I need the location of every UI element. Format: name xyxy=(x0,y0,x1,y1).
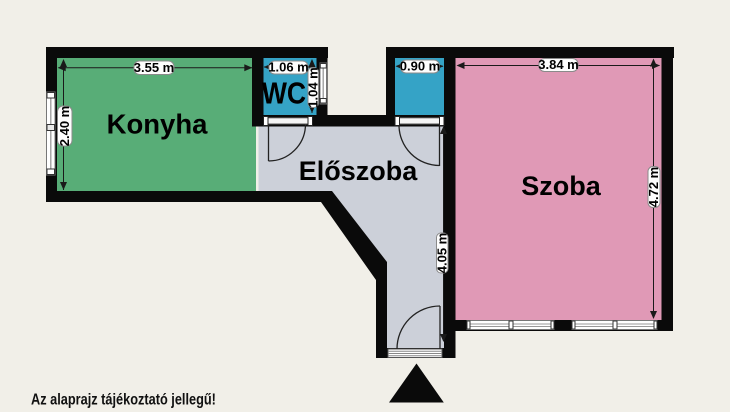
svg-text:1.06 m: 1.06 m xyxy=(268,60,308,75)
svg-text:4.05 m: 4.05 m xyxy=(434,233,449,273)
svg-text:1.04 m: 1.04 m xyxy=(305,67,320,107)
svg-text:Előszoba: Előszoba xyxy=(299,156,419,186)
svg-text:Az alaprajz tájékoztató jelleg: Az alaprajz tájékoztató jellegű! xyxy=(31,391,216,408)
svg-text:3.55 m: 3.55 m xyxy=(134,60,174,75)
svg-text:0.90 m: 0.90 m xyxy=(400,59,440,74)
svg-text:Konyha: Konyha xyxy=(107,109,209,140)
svg-text:2.40 m: 2.40 m xyxy=(57,106,72,146)
svg-text:4.72 m: 4.72 m xyxy=(646,167,661,207)
svg-text:WC: WC xyxy=(262,77,306,111)
svg-text:Szoba: Szoba xyxy=(521,171,601,201)
svg-text:3.84 m: 3.84 m xyxy=(538,57,578,72)
